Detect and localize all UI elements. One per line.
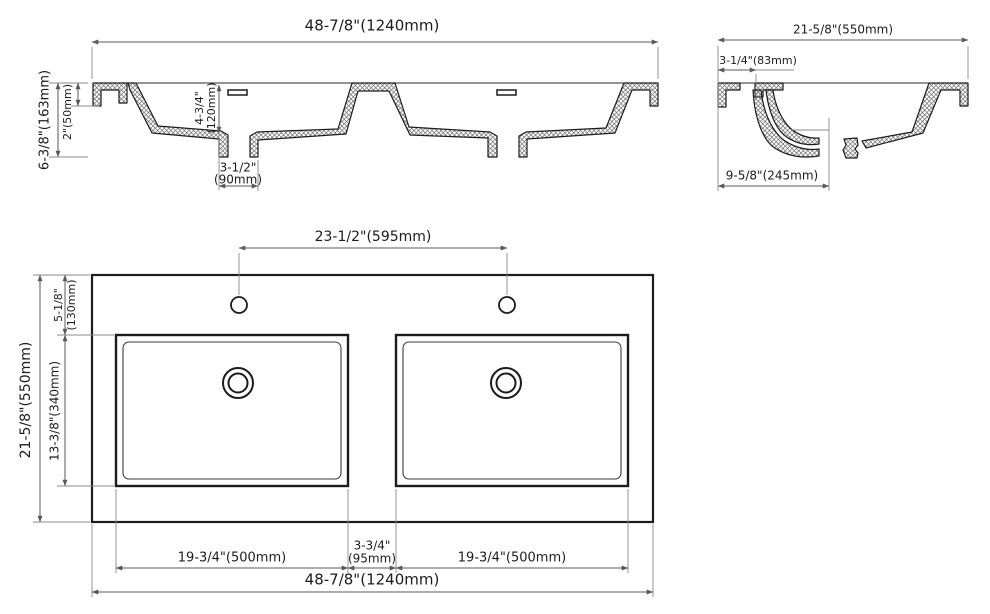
- plan-left-drain-inner: [229, 374, 248, 393]
- plan-right-bowl-inner-edge: [403, 342, 621, 479]
- front-rim-dim-label: 2"(50mm): [61, 84, 74, 140]
- side-drain-foot-section: [843, 138, 858, 158]
- plan-overall-width-dim-label: 48-7/8"(1240mm): [305, 571, 440, 589]
- front-width-dim-label: 48-7/8"(1240mm): [305, 17, 440, 35]
- drawing-svg: 48-7/8"(1240mm) 6-3/8"(163mm) 2"(50mm) 4…: [0, 0, 990, 614]
- side-front-rim-section: [718, 83, 740, 107]
- plan-right-faucet-hole: [499, 297, 515, 313]
- front-left-faucet-slot: [228, 90, 247, 95]
- plan-faucet-spacing-dim-label: 23-1/2"(595mm): [315, 229, 432, 245]
- side-ledge-dim-label: 3-1/4"(83mm): [719, 54, 797, 67]
- front-bowl-depth-label-line2: (120mm): [205, 82, 218, 133]
- side-depth-dim-label: 21-5/8"(550mm): [793, 23, 893, 37]
- plan-overall-depth-dim-label: 21-5/8"(550mm): [18, 342, 34, 459]
- front-drain-width-label-line2: (90mm): [214, 173, 262, 187]
- plan-right-bowl-width-dim-label: 19-3/4"(500mm): [458, 551, 566, 566]
- plan-right-drain-inner: [497, 374, 516, 393]
- plan-bowl-front-back-dim-label: 13-3/8"(340mm): [48, 361, 62, 461]
- sink-technical-drawing: 48-7/8"(1240mm) 6-3/8"(163mm) 2"(50mm) 4…: [0, 0, 990, 614]
- plan-left-bowl-width-dim-label: 19-3/4"(500mm): [178, 551, 286, 566]
- side-drain-offset-dim-label: 9-5/8"(245mm): [726, 169, 818, 183]
- plan-right-bowl-outline: [396, 335, 628, 486]
- plan-left-bowl-outline: [116, 335, 348, 486]
- plan-front-ledge-label-line1: 5-1/8": [52, 288, 65, 322]
- plan-front-ledge-label-line2: (130mm): [65, 279, 78, 330]
- side-section-view: 21-5/8"(550mm) 3-1/4"(83mm) 9-5/8"(245mm…: [718, 23, 968, 192]
- side-back-wall-section: [862, 83, 968, 148]
- front-right-bowl-wall-section: [519, 83, 658, 157]
- plan-left-bowl-inner-edge: [123, 342, 341, 479]
- front-left-rim-section: [93, 83, 127, 106]
- plan-left-faucet-hole: [231, 297, 247, 313]
- front-height-dim-label: 6-3/8"(163mm): [38, 70, 53, 170]
- plan-view: 23-1/2"(595mm) 5-1/8" (130mm) 13-3/8"(34…: [18, 229, 653, 597]
- front-section-view: 48-7/8"(1240mm) 6-3/8"(163mm) 2"(50mm) 4…: [38, 17, 659, 192]
- front-right-faucet-slot: [497, 90, 516, 95]
- front-center-divider-section: [250, 83, 497, 157]
- plan-center-gap-label-line1: 3-3/4": [354, 539, 391, 553]
- plan-center-gap-label-line2: (95mm): [348, 552, 396, 566]
